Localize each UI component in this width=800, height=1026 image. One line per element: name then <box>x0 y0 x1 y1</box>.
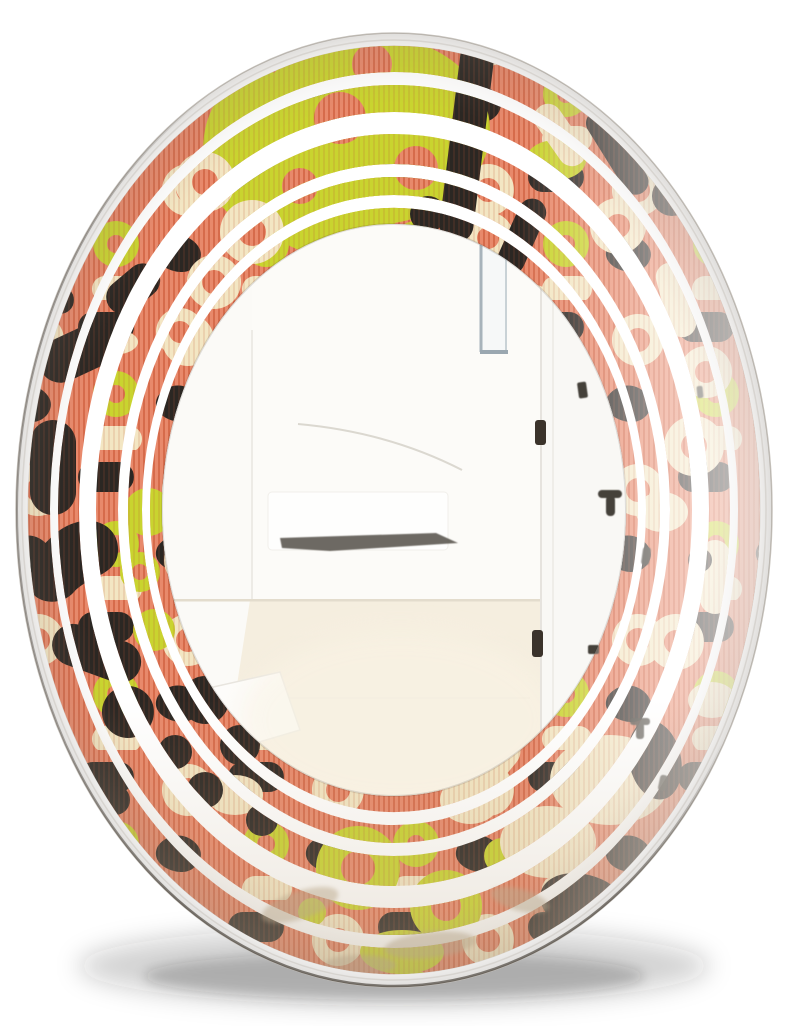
product-photo <box>0 0 800 1026</box>
rim-shading <box>16 33 772 987</box>
oval-mirror-image <box>0 0 800 1026</box>
